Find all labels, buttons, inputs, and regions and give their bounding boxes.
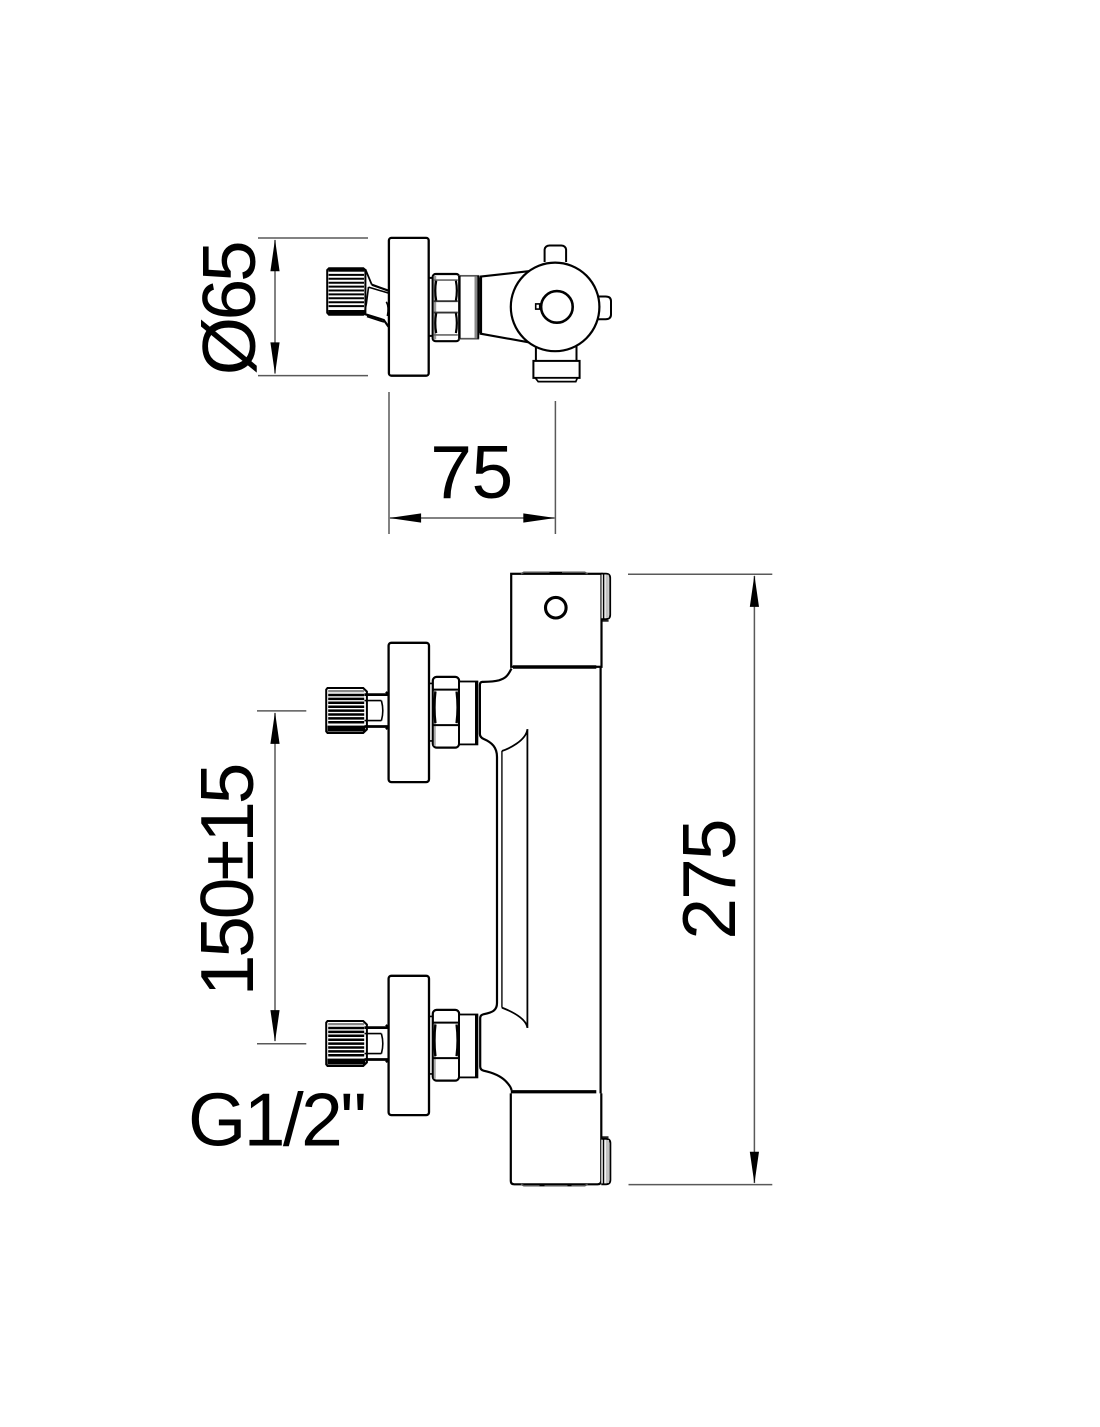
svg-text:150±15: 150±15 <box>185 765 269 996</box>
svg-text:275: 275 <box>667 820 751 939</box>
svg-text:Ø65: Ø65 <box>187 243 271 375</box>
svg-text:G1/2": G1/2" <box>188 1078 364 1162</box>
svg-text:75: 75 <box>430 430 512 514</box>
